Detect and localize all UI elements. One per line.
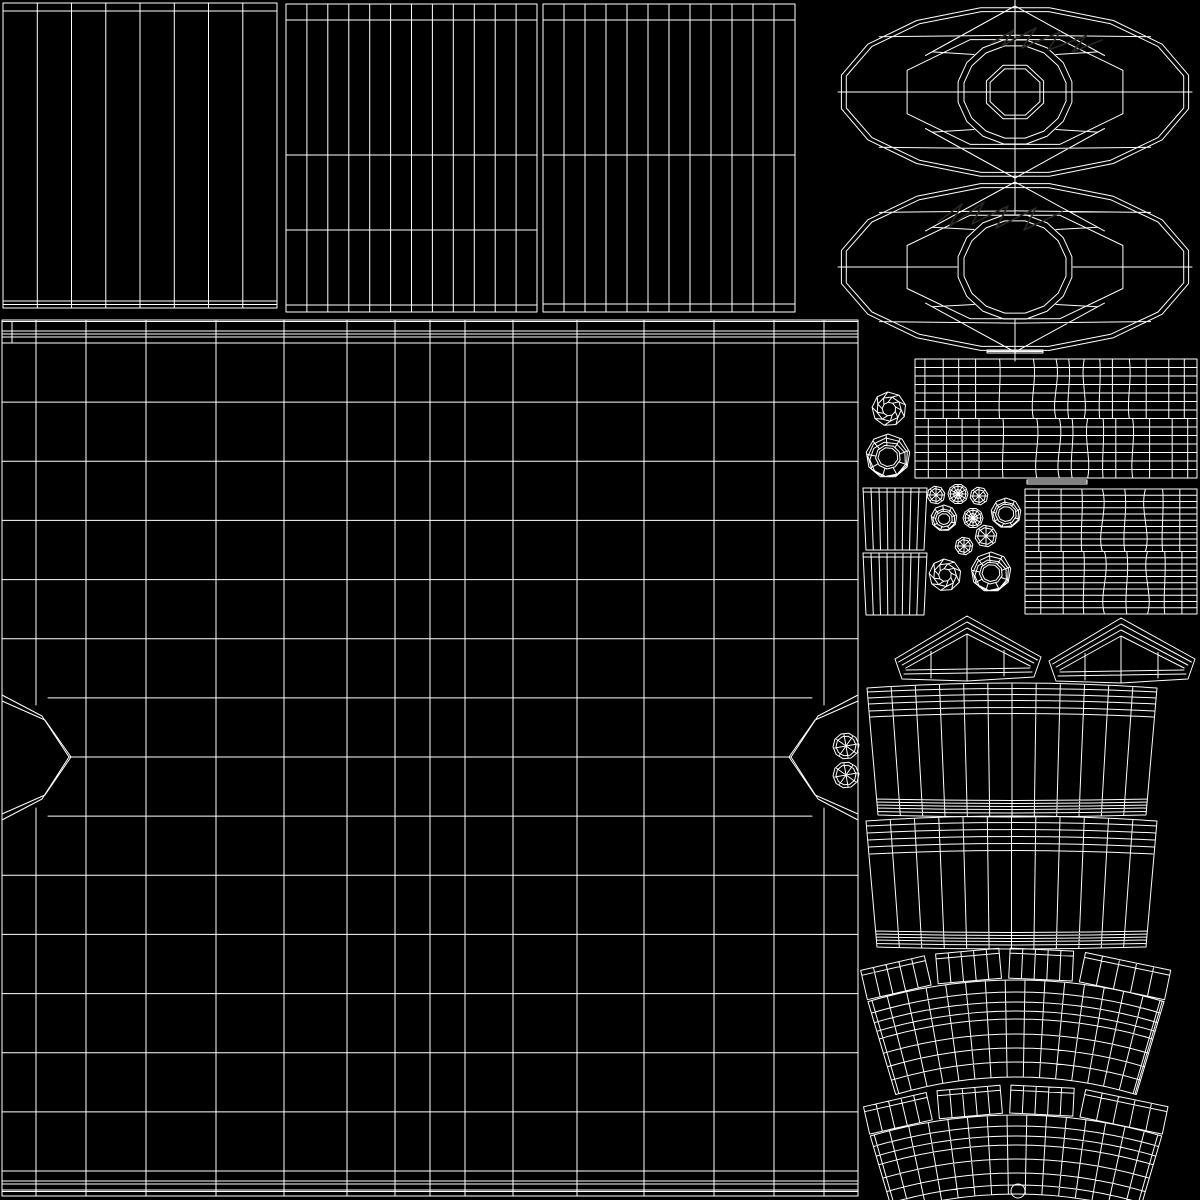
seam-tab-a: [987, 350, 1043, 353]
wheel-disc-with-hub: [838, 0, 1192, 187]
uv-wireframe-canvas: [0, 0, 1200, 1200]
seam-tab-b: [1027, 480, 1087, 484]
bolt-a: [927, 486, 945, 504]
bolt-d: [975, 525, 997, 547]
gear-b: [963, 509, 983, 528]
tread-strip-upper: [915, 359, 1197, 478]
ring-nut-stacked: [971, 552, 1010, 591]
wheel-disc-open: [838, 173, 1192, 361]
gable-right: [1049, 618, 1195, 683]
fender-arch-lower: [864, 1085, 1169, 1200]
faceted-knob-large: [872, 392, 905, 425]
panel-top-middle: [286, 4, 537, 312]
ring-nut-a: [931, 505, 957, 530]
faceted-knob-small: [929, 559, 960, 590]
ring-nut-large: [866, 434, 909, 477]
bolt-b: [970, 487, 988, 505]
gear-a: [948, 485, 968, 504]
barrel-panel-upper: [867, 683, 1157, 817]
panel-top-left: [3, 3, 277, 308]
barrel-panel-lower: [866, 816, 1157, 949]
fender-arch-upper: [861, 948, 1171, 1094]
uv-map-svg: [0, 0, 1200, 1200]
hull-grid: [2, 320, 859, 1196]
side-cap-upper: [863, 488, 927, 550]
ring-nut-b: [991, 498, 1021, 527]
gable-left: [895, 616, 1041, 681]
panel-top-right: [543, 4, 795, 312]
bolt-c: [955, 537, 973, 555]
grommet-dot: [1011, 1184, 1025, 1198]
tread-strip-right: [1025, 489, 1197, 614]
side-cap-lower: [863, 553, 927, 615]
